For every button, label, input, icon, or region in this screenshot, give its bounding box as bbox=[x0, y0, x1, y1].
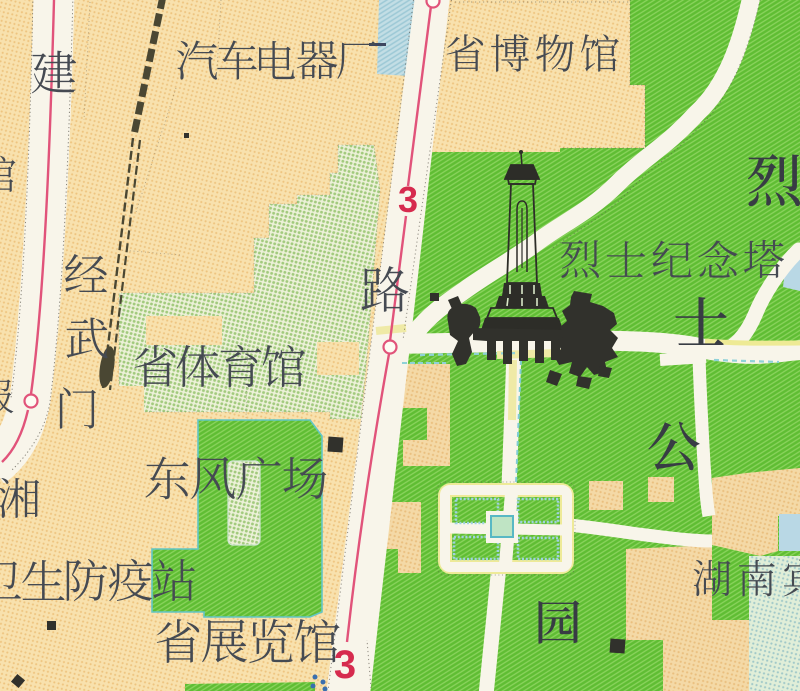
svg-text:3: 3 bbox=[334, 643, 356, 687]
svg-text:3: 3 bbox=[398, 179, 418, 220]
